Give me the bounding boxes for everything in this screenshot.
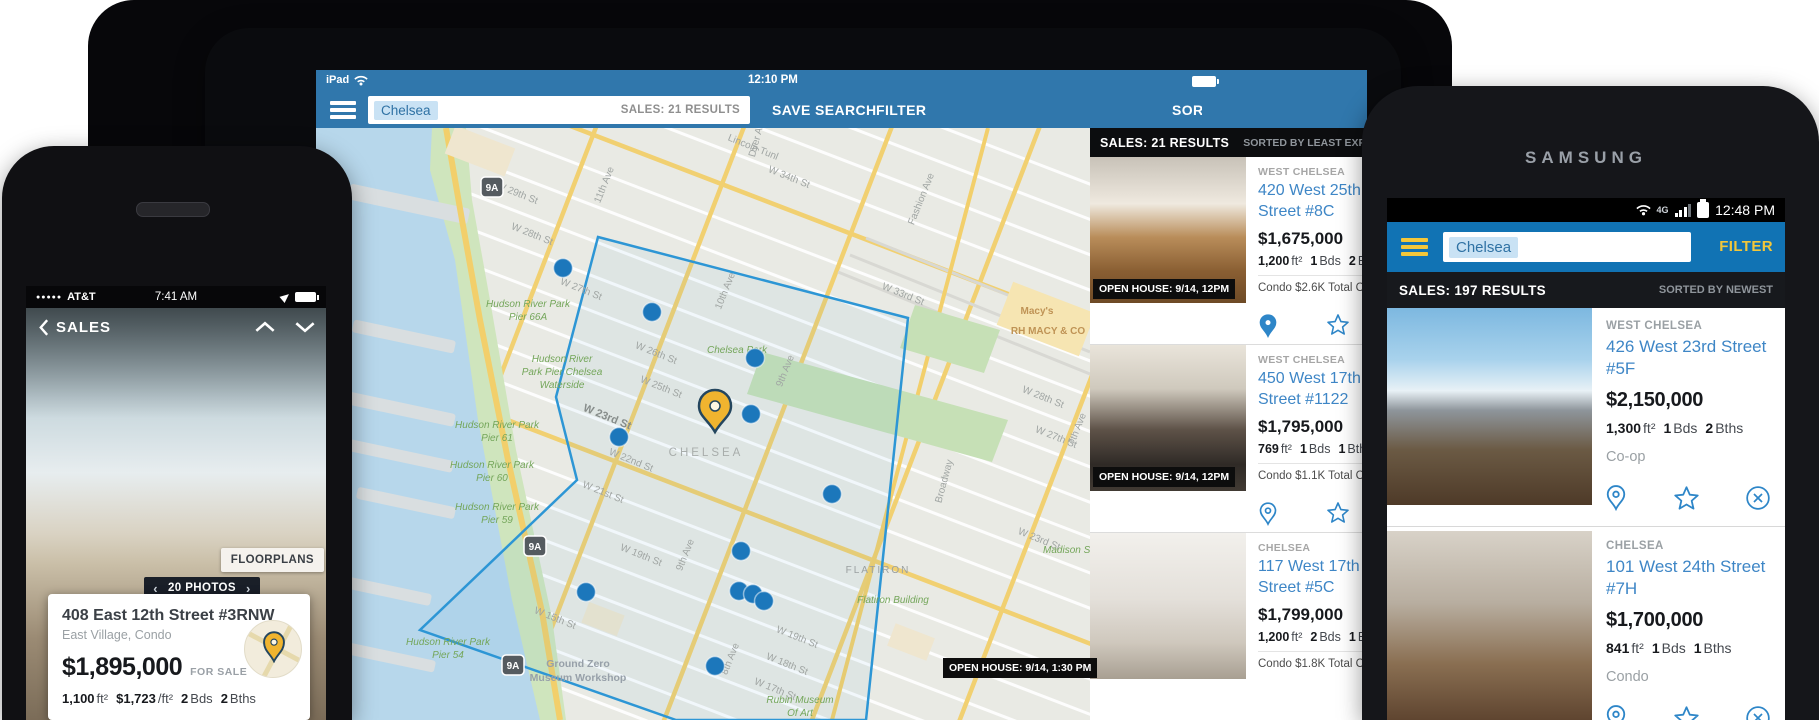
listing-type: Condo: [1606, 669, 1775, 685]
samsung-status-bar: 4G 12:48 PM: [1387, 198, 1785, 222]
listing-neighborhood: WEST CHELSEA: [1258, 166, 1363, 178]
listing-neighborhood: WEST CHELSEA: [1606, 320, 1775, 332]
chevron-up-icon[interactable]: [254, 320, 276, 333]
map-listing-dot[interactable]: [643, 303, 662, 322]
svg-text:9A: 9A: [486, 183, 499, 194]
filter-button[interactable]: FILTER: [1719, 222, 1773, 272]
map-label: Hudson River: [532, 354, 593, 365]
sort-button[interactable]: SORT: [1172, 92, 1202, 128]
ipad-results-panel: SALES: 21 RESULTS SORTED BY LEAST EXP OP…: [1090, 128, 1367, 720]
map-label: Hudson River Park: [486, 299, 571, 310]
map-label: Museum Workshop: [530, 672, 627, 684]
map-label: FLATIRON: [846, 565, 911, 576]
listing-summary-card[interactable]: 408 East 12th Street #3RNW East Village,…: [48, 594, 310, 720]
map-label: CHELSEA: [669, 447, 744, 459]
listing-card[interactable]: OPEN HOUSE: 9/14, 12PM WEST CHELSEA 450 …: [1090, 345, 1367, 533]
listing-price: $1,675,000: [1258, 229, 1363, 249]
listing-stats: 841ft²1Bds1Bths: [1606, 640, 1775, 656]
map-listing-dot[interactable]: [755, 592, 774, 611]
listing-neighborhood: CHELSEA: [1606, 540, 1775, 552]
menu-icon[interactable]: [1401, 238, 1428, 256]
listing-stats: 1,100ft²$1,723/ft²2Bds2Bths: [62, 691, 296, 706]
listing-card[interactable]: OPEN HOUSE: 9/14, 1:30 PM CHELSEA 117 We…: [1090, 533, 1367, 720]
map-listing-dot[interactable]: [746, 349, 765, 368]
listing-neighborhood: CHELSEA: [1258, 542, 1363, 554]
iphone-device: ●●●●● AT&T 7:41 AM SALES: [2, 146, 352, 720]
results-sort[interactable]: SORTED BY NEWEST: [1659, 284, 1773, 296]
map-pin-icon[interactable]: [1605, 704, 1627, 720]
marketing-hero: iPad 12:10 PM Chelsea SALES: 21 RESULTS …: [0, 0, 1819, 720]
map-listing-dot[interactable]: [706, 657, 725, 676]
svg-text:9A: 9A: [529, 542, 542, 553]
map-label: Hudson River Park: [450, 460, 535, 471]
listing-stats: 1,200ft²1Bds2Bths: [1258, 254, 1363, 268]
open-house-badge: OPEN HOUSE: 9/14, 12PM: [1093, 467, 1235, 487]
listing-neighborhood: WEST CHELSEA: [1258, 354, 1363, 366]
battery-icon: [1192, 76, 1216, 87]
samsung-toolbar: Chelsea FILTER: [1387, 222, 1785, 272]
signal-bars-icon: [1675, 204, 1692, 217]
network-4g-icon: 4G: [1657, 205, 1669, 215]
listing-type: Co-op: [1606, 449, 1775, 465]
results-header: SALES: 21 RESULTS SORTED BY LEAST EXP: [1090, 128, 1367, 157]
iphone-speaker: [136, 202, 210, 217]
listing-photo[interactable]: OPEN HOUSE: 9/14, 12PM: [1090, 157, 1246, 303]
battery-icon: [1697, 202, 1709, 218]
map-listing-dot[interactable]: [823, 485, 842, 504]
map-pin-icon[interactable]: [1258, 313, 1278, 339]
back-button[interactable]: SALES: [56, 319, 111, 336]
map-thumbnail[interactable]: [244, 620, 302, 678]
listing-price: $1,895,000: [62, 653, 182, 682]
save-star-icon[interactable]: [1673, 485, 1700, 512]
map-label: Rubin Museum: [766, 695, 833, 706]
listing-card[interactable]: OPEN HOUSE: 9/14, 12PM WEST CHELSEA 420 …: [1090, 157, 1367, 345]
back-chevron-icon[interactable]: [38, 318, 49, 337]
listing-stats: 1,300ft²1Bds2Bths: [1606, 420, 1775, 436]
samsung-device: SAMSUNG 4G 12:48 PM Chelsea: [1362, 86, 1819, 720]
ipad-toolbar: Chelsea SALES: 21 RESULTS SAVE SEARCH FI…: [316, 92, 1367, 128]
search-results-count: SALES: 21 RESULTS: [621, 104, 740, 116]
map-label: Flatiron Building: [857, 595, 929, 606]
map-label: Hudson River Park: [455, 420, 540, 431]
ipad-screen: iPad 12:10 PM Chelsea SALES: 21 RESULTS …: [316, 70, 1367, 720]
ipad-status-bar: iPad 12:10 PM: [316, 70, 1367, 92]
save-star-icon[interactable]: [1326, 501, 1350, 525]
map[interactable]: Lincoln TunlW 34th StW 33rd StW 30th StW…: [316, 128, 1090, 720]
battery-icon: [295, 292, 316, 302]
map-label: Hudson River Park: [455, 502, 540, 513]
map-label: Pier 60: [476, 473, 508, 484]
map-label: Hudson River Park: [406, 637, 491, 648]
listing-card[interactable]: CHELSEA 101 West 24th Street #7H $1,700,…: [1387, 528, 1785, 720]
map-label: Pier 54: [432, 650, 464, 661]
listing-photo[interactable]: OPEN HOUSE: 9/14, 1:30 PM: [1090, 533, 1246, 679]
filter-button[interactable]: FILTER: [876, 92, 926, 128]
open-house-badge: OPEN HOUSE: 9/14, 1:30 PM: [943, 658, 1097, 678]
results-header: SALES: 197 RESULTS SORTED BY NEWEST: [1387, 272, 1785, 308]
floorplans-button[interactable]: FLOORPLANS: [221, 548, 324, 572]
map-pin-icon: [261, 629, 287, 663]
map-listing-dot[interactable]: [577, 583, 596, 602]
route-9a-shield: 9A: [502, 655, 524, 675]
search-input[interactable]: Chelsea SALES: 21 RESULTS: [368, 96, 750, 124]
route-9a-shield: 9A: [481, 177, 503, 197]
map-label: Park Pier Chelsea: [522, 367, 603, 378]
listing-photo[interactable]: [1387, 531, 1592, 720]
route-9a-shield: 9A: [524, 536, 546, 556]
map-listing-dot[interactable]: [742, 405, 761, 424]
iphone-status-bar: ●●●●● AT&T 7:41 AM: [26, 286, 326, 308]
listing-price: $1,795,000: [1258, 417, 1363, 437]
listing-info: CHELSEA 117 West 17th Street #5C $1,799,…: [1246, 533, 1367, 720]
listing-fee: Condo $2.6K Total C: [1258, 275, 1363, 294]
listing-address[interactable]: 117 West 17th Street #5C: [1258, 557, 1362, 599]
listing-address[interactable]: 420 West 25th Street #8C: [1258, 181, 1362, 223]
listing-price: $1,799,000: [1258, 605, 1363, 625]
hide-listing-icon[interactable]: [1745, 485, 1771, 511]
listing-price: $2,150,000: [1606, 389, 1775, 412]
photos-count-label: 20 PHOTOS: [168, 582, 236, 594]
map-label: Macy's: [1021, 306, 1054, 317]
map-label: Of Art: [787, 708, 814, 719]
wifi-icon: [354, 75, 368, 86]
listing-address[interactable]: 101 West 24th Street #7H: [1606, 556, 1775, 600]
results-sort[interactable]: SORTED BY LEAST EXP: [1243, 137, 1365, 149]
listing-address[interactable]: 450 West 17th Street #1122: [1258, 369, 1362, 411]
map-pin-icon[interactable]: [1605, 484, 1627, 512]
map-label: RH MACY & CO: [1011, 326, 1085, 337]
ipad-clock: 12:10 PM: [748, 74, 798, 86]
chevron-down-icon[interactable]: [294, 320, 316, 333]
map-label: Pier 61: [481, 433, 513, 444]
map-label: Pier 59: [481, 515, 513, 526]
search-value[interactable]: Chelsea: [1449, 237, 1518, 258]
samsung-clock: 12:48 PM: [1715, 202, 1775, 218]
hide-listing-icon[interactable]: [1745, 705, 1771, 720]
for-sale-tag: FOR SALE: [190, 666, 247, 678]
listing-photo[interactable]: [1387, 308, 1592, 505]
wifi-icon: [1636, 204, 1651, 216]
samsung-logo: SAMSUNG: [1387, 148, 1785, 168]
save-star-icon[interactable]: [1326, 313, 1350, 337]
map-listing-dot[interactable]: [610, 428, 629, 447]
map-pin-icon[interactable]: [1258, 501, 1278, 527]
save-search-button[interactable]: SAVE SEARCH: [772, 92, 877, 128]
map-listing-dot[interactable]: [554, 259, 573, 278]
open-house-badge: OPEN HOUSE: 9/14, 12PM: [1093, 279, 1235, 299]
listing-photo[interactable]: OPEN HOUSE: 9/14, 12PM: [1090, 345, 1246, 491]
map-label: Pier 66A: [509, 312, 548, 323]
listing-fee: Condo $1.1K Total Cl: [1258, 463, 1363, 482]
svg-text:9A: 9A: [507, 661, 520, 672]
map-label: Madison Squa: [1043, 545, 1090, 556]
save-star-icon[interactable]: [1673, 705, 1700, 720]
results-count: SALES: 197 RESULTS: [1399, 283, 1546, 298]
listing-info: CHELSEA 101 West 24th Street #7H $1,700,…: [1592, 528, 1785, 720]
listing-address[interactable]: 426 West 23rd Street #5F: [1606, 336, 1775, 380]
listing-card[interactable]: WEST CHELSEA 426 West 23rd Street #5F $2…: [1387, 308, 1785, 527]
iphone-screen: ●●●●● AT&T 7:41 AM SALES: [26, 286, 326, 720]
results-count: SALES: 21 RESULTS: [1100, 136, 1229, 150]
ipad-device-label: iPad: [326, 74, 349, 86]
samsung-screen: 4G 12:48 PM Chelsea FILTER SALES: 197 RE…: [1387, 198, 1785, 720]
map-label: Ground Zero: [546, 658, 610, 670]
ipad-device: iPad 12:10 PM Chelsea SALES: 21 RESULTS …: [205, 28, 1401, 720]
listing-stats: 1,200ft²2Bds1B: [1258, 630, 1363, 644]
search-value[interactable]: Chelsea: [374, 101, 438, 120]
menu-icon[interactable]: [330, 101, 356, 119]
map-label: Waterside: [540, 380, 585, 391]
listing-stats: 769ft²1Bds1Bths: [1258, 442, 1363, 456]
listing-price: $1,700,000: [1606, 609, 1775, 632]
map-listing-dot[interactable]: [732, 542, 751, 561]
listing-fee: Condo $1.8K Total Cl: [1258, 651, 1363, 670]
search-input[interactable]: Chelsea: [1443, 232, 1691, 262]
